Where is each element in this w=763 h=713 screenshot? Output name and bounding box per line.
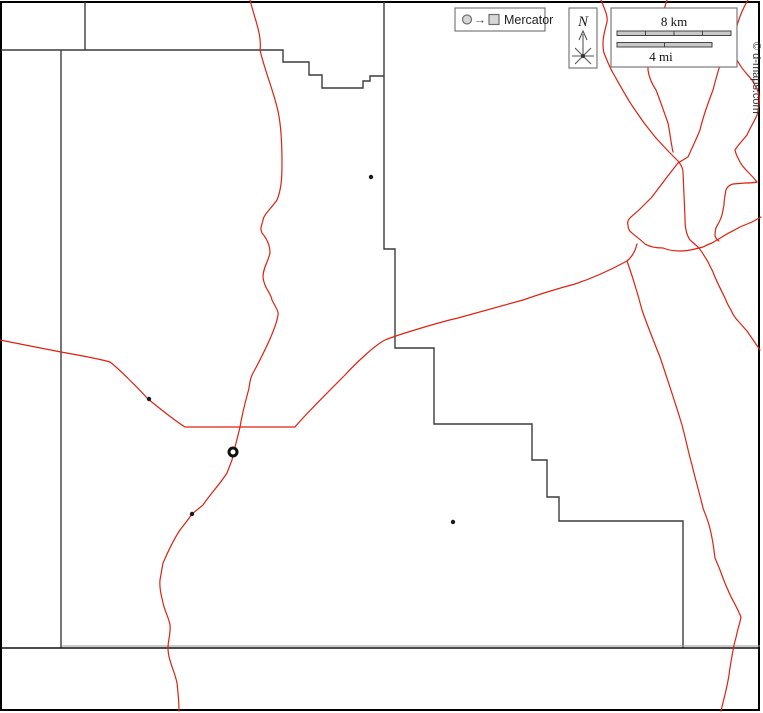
- road-south-branch: [627, 261, 741, 711]
- arrow-right-icon: →: [474, 13, 486, 27]
- compass-box: N: [569, 8, 597, 68]
- boundary-top-step: [1, 50, 384, 88]
- town-layer: [147, 175, 455, 524]
- map-page: → Mercator N 8 km 4 mi © d: [0, 0, 763, 713]
- boundary-layer: [1, 2, 760, 648]
- boundary-main-staircase: [384, 2, 683, 648]
- map-frame: [1, 2, 759, 710]
- projection-label: Mercator: [504, 13, 553, 27]
- town-dot: [369, 175, 373, 179]
- scalebar-box: 8 km 4 mi: [611, 8, 737, 67]
- county-map-canvas: → Mercator N 8 km 4 mi © d: [0, 0, 763, 713]
- town-dot: [147, 397, 151, 401]
- globe-circle-icon: [463, 15, 472, 24]
- road-layer: [0, 0, 761, 711]
- km-bar: [617, 31, 731, 36]
- mi-bar: [617, 43, 712, 48]
- town-dot: [451, 520, 455, 524]
- road-southwest: [0, 244, 637, 427]
- town-dot: [190, 512, 194, 516]
- river-west: [160, 0, 282, 711]
- copyright-text: © d-maps.com: [750, 42, 762, 114]
- map-square-icon: [489, 15, 499, 25]
- north-label: N: [577, 14, 589, 30]
- projection-legend: → Mercator: [455, 8, 553, 31]
- scale-km-label: 8 km: [661, 14, 687, 29]
- city-ring-marker: [229, 448, 237, 456]
- scale-mi-label: 4 mi: [649, 49, 673, 64]
